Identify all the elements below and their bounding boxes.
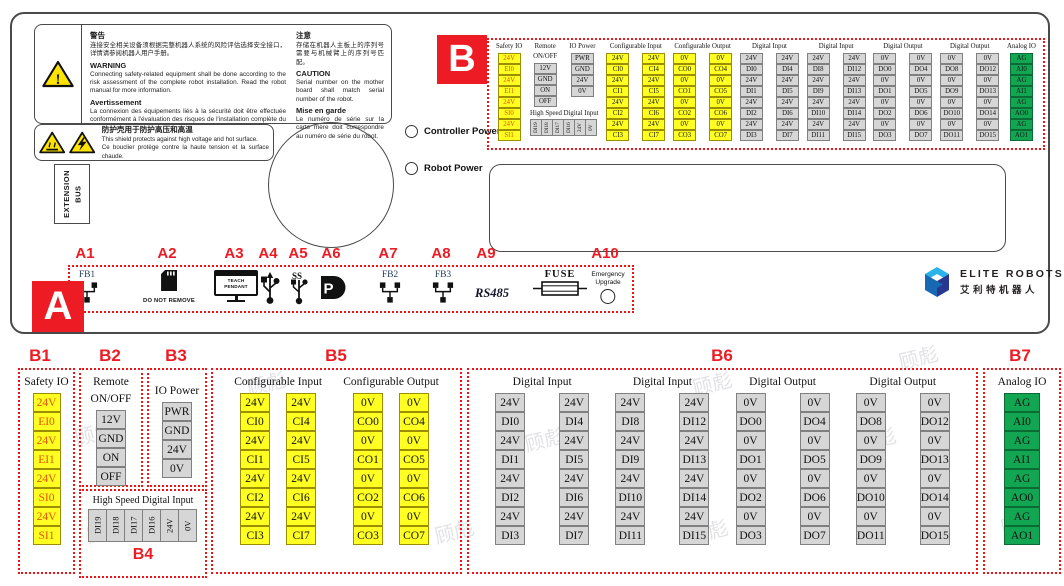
io-terminal-cell: AG xyxy=(1004,469,1040,488)
terminal-slot-outline xyxy=(489,164,1006,252)
io-terminal-cell: CI5 xyxy=(642,86,665,97)
io-terminal-cell: CO4 xyxy=(709,64,732,75)
io-terminal-cell: 0V xyxy=(399,393,429,412)
warning-triangle-icon: ! xyxy=(35,25,82,123)
io-group-digital-input-a: Digital Input 24VDI024VDI124VDI224VDI324… xyxy=(740,43,799,141)
robot-power-label: Robot Power xyxy=(424,163,483,174)
io-terminal-cell: 0V xyxy=(873,53,896,64)
io-group-digital-output-b: Digital Output 0VDO80VDO90VDO100VDO110VD… xyxy=(856,376,950,545)
io-terminal-cell: 0V xyxy=(399,507,429,526)
io-terminal-cell: 0V xyxy=(709,119,732,130)
io-terminal-cell: DI17 xyxy=(124,509,143,542)
io-terminal-cell: AG xyxy=(1010,75,1033,86)
io-terminal-cell: EI1 xyxy=(33,450,61,469)
caution-zh-title: 注意 xyxy=(296,30,384,41)
io-terminal-cell: 24V xyxy=(606,97,629,108)
connector-a7-fb2: FB2 xyxy=(379,270,401,309)
label-a4: A4 xyxy=(258,245,277,262)
io-group-io-power: IO Power PWRGND24V0V xyxy=(569,43,595,107)
io-terminal-cell: AG xyxy=(1004,431,1040,450)
io-group-digital-input-b: Digital Input 24VDI824VDI924VDI1024VDI11… xyxy=(615,376,709,545)
io-terminal-cell: 24V xyxy=(843,75,866,86)
io-terminal-cell: 24V xyxy=(615,507,645,526)
io-terminal-cell: AI0 xyxy=(1004,412,1040,431)
io-terminal-cell: DO13 xyxy=(920,450,950,469)
io-terminal-cell: SI0 xyxy=(498,108,521,119)
io-group-digital-output-b: Digital Output 0VDO80VDO90VDO100VDO110VD… xyxy=(940,43,999,141)
io-terminal-cell: DI14 xyxy=(679,488,709,507)
io-terminal-cell: 24V xyxy=(571,75,594,86)
io-terminal-cell: SI0 xyxy=(33,488,61,507)
io-terminal-cell: 24V xyxy=(807,75,830,86)
io-terminal-column: 24VDI424VDI524VDI624VDI7 xyxy=(559,393,589,545)
io-terminal-cell: DO3 xyxy=(873,130,896,141)
io-overview-box: Safety IO 24VEI024VEI124VSI024VSI1 Remot… xyxy=(487,38,1045,150)
io-terminal-cell: 0V xyxy=(873,97,896,108)
io-terminal-cell: DO10 xyxy=(856,488,886,507)
io-terminal-cell: OFF xyxy=(96,467,126,486)
io-terminal-cell: 24V xyxy=(807,53,830,64)
io-terminal-cell: 24V xyxy=(807,97,830,108)
warning-zh-body: 连接安全相关设备须根据完整机器人系统的风险评估选择安全接口，详情请参阅机器人用户… xyxy=(90,42,286,59)
io-terminal-cell: 0V xyxy=(909,97,932,108)
io-terminal-cell: 0V xyxy=(709,97,732,108)
io-group-digital-input-a: Digital Input 24VDI024VDI124VDI224VDI324… xyxy=(495,376,589,545)
io-terminal-column: 24VCI424VCI524VCI624VCI7 xyxy=(642,53,665,141)
warning-fr-title: Avertissement xyxy=(90,98,286,107)
io-terminal-cell: 24V xyxy=(498,119,521,130)
io-terminal-cell: DI4 xyxy=(776,64,799,75)
connector-a5-usb3: SS xyxy=(290,271,308,310)
label-b7: B7 xyxy=(1009,346,1031,366)
io-terminal-cell: 24V xyxy=(240,507,270,526)
io-terminal-cell: DI16 xyxy=(142,509,161,542)
io-terminal-cell: 24V xyxy=(559,469,589,488)
io-terminal-cell: 0V xyxy=(585,119,597,136)
io-terminal-cell: CI2 xyxy=(606,108,629,119)
io-terminal-cell: 0V xyxy=(920,507,950,526)
io-terminal-cell: 24V xyxy=(498,97,521,108)
io-group-analog: Analog IO AGAI0AGAI1AGAO0AGAO1 xyxy=(1007,43,1036,141)
fuse-holder: FUSE xyxy=(533,269,587,302)
io-terminal-cell: 0V xyxy=(800,393,830,412)
io-terminal-cell: AI0 xyxy=(1010,64,1033,75)
io-terminal-column: 24VCI024VCI124VCI224VCI3 xyxy=(606,53,629,141)
io-terminal-column: 24VEI024VEI124VSI024VSI1 xyxy=(33,393,61,545)
sd-card-icon xyxy=(161,270,177,291)
io-terminal-cell: DO8 xyxy=(940,64,963,75)
io-terminal-cell: 0V xyxy=(736,393,766,412)
io-group-remote: Remote ON/OFF 12VGNDONOFF xyxy=(533,43,557,107)
brand-name-en: ELITE ROBOTS xyxy=(960,268,1064,280)
io-terminal-cell: DO10 xyxy=(940,108,963,119)
io-terminal-cell: DO6 xyxy=(800,488,830,507)
io-terminal-column: PWRGND24V0V xyxy=(162,402,192,478)
section-a-marker: A xyxy=(32,281,84,332)
io-terminal-cell: CI3 xyxy=(240,526,270,545)
io-terminal-column: PWRGND24V0V xyxy=(571,53,594,97)
label-b2: B2 xyxy=(99,346,121,366)
io-terminal-cell: DO6 xyxy=(909,108,932,119)
io-terminal-cell: DI13 xyxy=(843,86,866,97)
box-b5-configurable-io: Configurable Input 24VCI024VCI124VCI224V… xyxy=(211,368,462,574)
io-terminal-cell: DI11 xyxy=(615,526,645,545)
label-a8: A8 xyxy=(431,245,450,262)
io-group-safety: Safety IO 24VEI024VEI124VSI024VSI1 xyxy=(496,43,522,141)
io-terminal-cell: 0V xyxy=(976,119,999,130)
io-terminal-column: 24VDI824VDI924VDI1024VDI11 xyxy=(615,393,645,545)
io-terminal-cell: DO12 xyxy=(976,64,999,75)
network-icon xyxy=(432,281,454,304)
io-terminal-cell: 24V xyxy=(495,431,525,450)
io-terminal-cell: DO9 xyxy=(940,86,963,97)
io-terminal-cell: 24V xyxy=(606,53,629,64)
io-terminal-cell: PWR xyxy=(571,53,594,64)
io-terminal-cell: 0V xyxy=(736,507,766,526)
io-terminal-cell: CO1 xyxy=(673,86,696,97)
io-terminal-cell: DI11 xyxy=(807,130,830,141)
io-terminal-column: 0VDO80VDO90VDO100VDO11 xyxy=(940,53,963,141)
io-terminal-cell: 0V xyxy=(709,53,732,64)
io-terminal-cell: 24V xyxy=(559,507,589,526)
io-terminal-cell: 0V xyxy=(976,97,999,108)
label-a7: A7 xyxy=(378,245,397,262)
io-group-digital-output-a: Digital Output 0VDO00VDO10VDO20VDO30VDO4… xyxy=(736,376,830,545)
caution-zh-body: 存储在机器人主板上的序列号需要与机械臂上的序列号匹配。 xyxy=(296,42,384,67)
label-a1: A1 xyxy=(75,245,94,262)
io-terminal-column: 0VCO00VCO10VCO20VCO3 xyxy=(353,393,383,545)
io-terminal-cell: 0V xyxy=(940,75,963,86)
label-a10: A10 xyxy=(591,245,619,262)
label-b1: B1 xyxy=(29,346,51,366)
io-terminal-cell: DI18 xyxy=(106,509,125,542)
io-terminal-cell: DI12 xyxy=(679,412,709,431)
io-terminal-cell: DI13 xyxy=(679,450,709,469)
caution-en-body: Serial number on the mother board shall … xyxy=(296,79,384,104)
io-panel-mini: Safety IO 24VEI024VEI124VSI024VSI1 Remot… xyxy=(489,40,1043,144)
io-terminal-cell: 0V xyxy=(856,431,886,450)
io-terminal-cell: 24V xyxy=(776,75,799,86)
io-terminal-cell: 0V xyxy=(673,119,696,130)
io-terminal-cell: AG xyxy=(1010,119,1033,130)
io-terminal-cell: CI3 xyxy=(606,130,629,141)
box-b6-digital-io: Digital Input 24VDI024VDI124VDI224VDI324… xyxy=(467,368,978,574)
io-terminal-column: 0VDO40VDO50VDO60VDO7 xyxy=(909,53,932,141)
io-terminal-cell: 0V xyxy=(353,431,383,450)
io-group-cluster: Remote ON/OFF 12VGNDONOFF IO Power PWRGN… xyxy=(530,43,599,136)
connector-a3-teach-pendant: TEACHPENDANT xyxy=(214,270,258,302)
io-terminal-cell: CO3 xyxy=(673,130,696,141)
io-group-configurable-output: Configurable Output 0VCO00VCO10VCO20VCO3… xyxy=(673,43,732,141)
io-terminal-cell: GND xyxy=(96,429,126,448)
io-terminal-cell: DI10 xyxy=(807,108,830,119)
io-terminal-column: 24VDI424VDI524VDI624VDI7 xyxy=(776,53,799,141)
shield-zh: 防护壳用于防护高压和高温 xyxy=(102,124,269,135)
io-terminal-cell: DI19 xyxy=(88,509,107,542)
io-terminal-cell: CI2 xyxy=(240,488,270,507)
io-group-configurable-input: Configurable Input 24VCI024VCI124VCI224V… xyxy=(234,376,322,545)
io-terminal-cell: 24V xyxy=(642,75,665,86)
io-terminal-cell: CO6 xyxy=(709,108,732,119)
io-terminal-cell: 24V xyxy=(495,393,525,412)
io-terminal-cell: CO5 xyxy=(399,450,429,469)
box-b3-io-power: IO Power PWRGND24V0V xyxy=(147,368,207,487)
io-terminal-cell: 0V xyxy=(873,75,896,86)
io-terminal-cell: 24V xyxy=(679,393,709,412)
io-terminal-cell: 0V xyxy=(736,469,766,488)
io-terminal-cell: DI5 xyxy=(776,86,799,97)
io-group-high-speed-di: High Speed Digital Input DI19DI18DI17DI1… xyxy=(530,110,599,137)
io-terminal-cell: 0V xyxy=(353,469,383,488)
io-terminal-cell: DI9 xyxy=(615,450,645,469)
io-terminal-cell: CI4 xyxy=(286,412,316,431)
io-group-digital-input-b: Digital Input 24VDI824VDI924VDI1024VDI11… xyxy=(807,43,866,141)
io-terminal-cell: 0V xyxy=(399,431,429,450)
io-terminal-cell: 12V xyxy=(534,63,557,74)
io-terminal-cell: 0V xyxy=(976,53,999,64)
io-terminal-cell: DI0 xyxy=(495,412,525,431)
io-terminal-cell: CO2 xyxy=(673,108,696,119)
label-a6: A6 xyxy=(321,245,340,262)
io-terminal-cell: 0V xyxy=(940,119,963,130)
io-terminal-cell: CI6 xyxy=(642,108,665,119)
shield-en: This shield protects against high voltag… xyxy=(102,136,269,144)
io-terminal-cell: 24V xyxy=(776,119,799,130)
io-terminal-cell: DO9 xyxy=(856,450,886,469)
io-terminal-cell: DI10 xyxy=(615,488,645,507)
io-terminal-column: 12VGNDONOFF xyxy=(534,63,557,107)
io-terminal-cell: SI1 xyxy=(498,130,521,141)
brand-logo: ELITE ROBOTS 艾利特机器人 xyxy=(922,266,1064,298)
io-terminal-cell: DI3 xyxy=(740,130,763,141)
io-terminal-column: 0VDO80VDO90VDO100VDO11 xyxy=(856,393,886,545)
io-terminal-cell: CO6 xyxy=(399,488,429,507)
io-terminal-column: 0VDO00VDO10VDO20VDO3 xyxy=(873,53,896,141)
io-terminal-cell: PWR xyxy=(162,402,192,421)
io-terminal-cell: DI8 xyxy=(807,64,830,75)
connector-a4-usb xyxy=(260,272,280,310)
io-terminal-cell: 0V xyxy=(856,393,886,412)
io-terminal-cell: 24V xyxy=(679,431,709,450)
io-terminal-cell: DO3 xyxy=(736,526,766,545)
io-terminal-cell: OFF xyxy=(534,96,557,107)
extension-bus-slot: EXTENSION BUS xyxy=(54,164,90,224)
io-terminal-cell: 24V xyxy=(33,469,61,488)
io-terminal-cell: DI6 xyxy=(776,108,799,119)
label-a2: A2 xyxy=(157,245,176,262)
io-terminal-cell: CI6 xyxy=(286,488,316,507)
io-terminal-cell: AG xyxy=(1004,507,1040,526)
label-a9: A9 xyxy=(476,245,495,262)
io-terminal-cell: AG xyxy=(1004,393,1040,412)
io-terminal-column: DI19DI18DI17DI1624V0V xyxy=(89,509,197,542)
io-terminal-cell: 0V xyxy=(920,469,950,488)
io-terminal-cell: 24V xyxy=(615,431,645,450)
io-terminal-cell: 24V xyxy=(642,53,665,64)
io-terminal-cell: 12V xyxy=(96,410,126,429)
io-terminal-cell: CO3 xyxy=(353,526,383,545)
io-terminal-cell: AO0 xyxy=(1010,108,1033,119)
io-terminal-cell: 0V xyxy=(736,431,766,450)
fuse-icon xyxy=(533,280,587,297)
io-terminal-cell: DI3 xyxy=(495,526,525,545)
io-terminal-column: 24VDI024VDI124VDI224VDI3 xyxy=(495,393,525,545)
io-terminal-cell: DI7 xyxy=(776,130,799,141)
label-a3: A3 xyxy=(224,245,243,262)
io-terminal-cell: CI4 xyxy=(642,64,665,75)
io-terminal-column: 0VCO00VCO10VCO20VCO3 xyxy=(673,53,696,141)
io-terminal-cell: CI0 xyxy=(240,412,270,431)
io-terminal-cell: 24V xyxy=(286,431,316,450)
io-terminal-cell: DO15 xyxy=(976,130,999,141)
io-terminal-cell: AI1 xyxy=(1004,450,1040,469)
io-terminal-cell: DI1 xyxy=(495,450,525,469)
box-b4-high-speed-di: High Speed Digital Input DI19DI18DI17DI1… xyxy=(79,489,207,578)
io-terminal-cell: 24V xyxy=(286,393,316,412)
io-terminal-cell: CO1 xyxy=(353,450,383,469)
label-b5: B5 xyxy=(325,346,347,366)
label-a5: A5 xyxy=(288,245,307,262)
io-terminal-cell: 0V xyxy=(673,75,696,86)
io-terminal-cell: 24V xyxy=(240,393,270,412)
io-terminal-cell: DI7 xyxy=(559,526,589,545)
io-terminal-cell: 0V xyxy=(800,507,830,526)
connector-a6-displayport: P xyxy=(319,275,347,305)
io-group-configurable-input: Configurable Input 24VCI024VCI124VCI224V… xyxy=(606,43,665,141)
io-terminal-cell: 24V xyxy=(843,119,866,130)
svg-text:!: ! xyxy=(55,72,60,88)
io-terminal-column: 0VDO120VDO130VDO140VDO15 xyxy=(920,393,950,545)
io-terminal-cell: 24V xyxy=(286,507,316,526)
io-terminal-cell: 24V xyxy=(606,119,629,130)
io-terminal-cell: 24V xyxy=(615,469,645,488)
io-terminal-cell: 24V xyxy=(498,75,521,86)
io-terminal-cell: 24V xyxy=(776,53,799,64)
io-terminal-cell: DO14 xyxy=(976,108,999,119)
io-terminal-cell: DO5 xyxy=(909,86,932,97)
usb3-ss-icon: SS xyxy=(290,271,308,305)
io-terminal-cell: 24V xyxy=(615,393,645,412)
io-terminal-cell: 0V xyxy=(800,469,830,488)
io-terminal-cell: DO7 xyxy=(909,130,932,141)
elite-cube-icon xyxy=(922,266,952,298)
io-terminal-cell: 24V xyxy=(740,75,763,86)
io-terminal-cell: DO8 xyxy=(856,412,886,431)
io-terminal-cell: DO4 xyxy=(800,412,830,431)
warning-zh-title: 警告 xyxy=(90,30,286,41)
io-terminal-cell: 24V xyxy=(642,119,665,130)
io-terminal-cell: DO15 xyxy=(920,526,950,545)
io-terminal-cell: AI1 xyxy=(1010,86,1033,97)
io-terminal-cell: SI1 xyxy=(33,526,61,545)
io-terminal-cell: AO0 xyxy=(1004,488,1040,507)
io-terminal-cell: CO4 xyxy=(399,412,429,431)
io-terminal-cell: 0V xyxy=(920,431,950,450)
io-terminal-cell: 0V xyxy=(399,469,429,488)
caution-en-title: CAUTION xyxy=(296,69,384,78)
usb-icon xyxy=(260,272,280,305)
io-terminal-cell: AG xyxy=(1010,97,1033,108)
io-terminal-cell: 24V xyxy=(740,97,763,108)
io-terminal-cell: CI7 xyxy=(642,130,665,141)
io-terminal-column: 0VCO40VCO50VCO60VCO7 xyxy=(709,53,732,141)
io-terminal-cell: 24V xyxy=(162,440,192,459)
io-terminal-cell: CI1 xyxy=(240,450,270,469)
io-terminal-cell: 24V xyxy=(33,431,61,450)
extension-bus-label-line2: BUS xyxy=(72,170,83,218)
io-terminal-cell: DO4 xyxy=(909,64,932,75)
io-terminal-cell: GND xyxy=(534,74,557,85)
io-terminal-cell: CO2 xyxy=(353,488,383,507)
io-terminal-cell: DO1 xyxy=(736,450,766,469)
io-terminal-cell: 0V xyxy=(673,53,696,64)
io-terminal-cell: CO7 xyxy=(709,130,732,141)
io-terminal-cell: CI5 xyxy=(286,450,316,469)
io-terminal-cell: 24V xyxy=(33,393,61,412)
warning-en-title: WARNING xyxy=(90,61,286,70)
io-terminal-cell: CO5 xyxy=(709,86,732,97)
io-terminal-cell: 24V xyxy=(559,431,589,450)
io-terminal-column: 24VDI824VDI924VDI1024VDI11 xyxy=(807,53,830,141)
shield-warning-label: 防护壳用于防护高压和高温 This shield protects agains… xyxy=(34,124,274,161)
io-terminal-cell: GND xyxy=(162,421,192,440)
io-terminal-cell: AO1 xyxy=(1010,130,1033,141)
io-terminal-cell: 24V xyxy=(606,75,629,86)
io-terminal-cell: DO7 xyxy=(800,526,830,545)
io-terminal-cell: 24V xyxy=(160,509,179,542)
io-terminal-cell: DI5 xyxy=(559,450,589,469)
io-terminal-cell: 0V xyxy=(162,459,192,478)
io-terminal-cell: DI1 xyxy=(740,86,763,97)
io-terminal-cell: 0V xyxy=(920,393,950,412)
box-b1-safety-io: Safety IO 24VEI024VEI124VSI024VSI1 xyxy=(18,368,75,574)
io-terminal-cell: DI4 xyxy=(559,412,589,431)
io-terminal-cell: DO0 xyxy=(873,64,896,75)
box-b2-remote-onoff: Remote ON/OFF 12VGNDONOFF xyxy=(79,368,143,487)
io-terminal-cell: DI6 xyxy=(559,488,589,507)
io-terminal-cell: 0V xyxy=(976,75,999,86)
io-terminal-cell: 0V xyxy=(909,53,932,64)
io-terminal-cell: AG xyxy=(1010,53,1033,64)
io-terminal-cell: 24V xyxy=(740,119,763,130)
io-terminal-cell: CI1 xyxy=(606,86,629,97)
io-terminal-cell: 24V xyxy=(559,393,589,412)
io-terminal-cell: EI0 xyxy=(498,64,521,75)
io-terminal-cell: CO7 xyxy=(399,526,429,545)
io-terminal-cell: CI7 xyxy=(286,526,316,545)
section-b-marker: B xyxy=(437,35,487,84)
io-terminal-cell: CI0 xyxy=(606,64,629,75)
io-terminal-cell: DI9 xyxy=(807,86,830,97)
io-terminal-cell: 24V xyxy=(286,469,316,488)
io-group-digital-output-a: Digital Output 0VDO00VDO10VDO20VDO30VDO4… xyxy=(873,43,932,141)
io-terminal-cell: 0V xyxy=(709,75,732,86)
io-terminal-cell: DO11 xyxy=(940,130,963,141)
io-terminal-cell: DO14 xyxy=(920,488,950,507)
io-terminal-column: 0VDO40VDO50VDO60VDO7 xyxy=(800,393,830,545)
io-terminal-cell: 0V xyxy=(873,119,896,130)
svg-text:P: P xyxy=(324,281,334,298)
connector-a10-emergency-upgrade: EmergencyUpgrade xyxy=(591,271,624,304)
io-detail-section: B1 B2 B3 B5 B6 B7 Safety IO 24VEI024VEI1… xyxy=(0,340,1064,586)
io-group-configurable-output: Configurable Output 0VCO00VCO10VCO20VCO3… xyxy=(343,376,439,545)
fan-cutout xyxy=(268,122,394,248)
io-terminal-cell: 0V xyxy=(800,431,830,450)
displayport-icon: P xyxy=(319,275,347,300)
io-terminal-cell: DI2 xyxy=(495,488,525,507)
io-terminal-column: 24VEI024VEI124VSI024VSI1 xyxy=(498,53,521,141)
io-terminal-column: 0VDO120VDO130VDO140VDO15 xyxy=(976,53,999,141)
